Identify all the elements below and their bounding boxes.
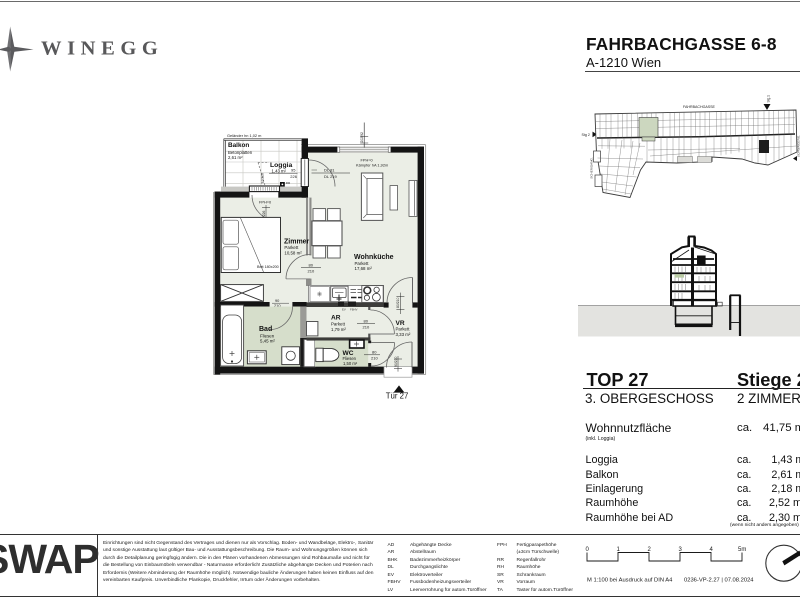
svg-text:Wohnküche: Wohnküche bbox=[354, 254, 394, 261]
svg-text:Stg.1: Stg.1 bbox=[767, 95, 771, 103]
svg-text:91/226: 91/226 bbox=[261, 173, 265, 183]
svg-text:FBHV: FBHV bbox=[350, 308, 358, 312]
svg-text:17,68 m²: 17,68 m² bbox=[355, 266, 373, 271]
svg-text:SCHERIDANG.: SCHERIDANG. bbox=[590, 157, 594, 179]
svg-text:95: 95 bbox=[291, 167, 296, 172]
svg-text:202/92: 202/92 bbox=[360, 132, 364, 142]
svg-text:FAHRBACHGASSE: FAHRBACHGASSE bbox=[683, 105, 716, 109]
svg-text:Kämpfer hA 1,92m: Kämpfer hA 1,92m bbox=[356, 163, 388, 168]
svg-text:5,45 m²: 5,45 m² bbox=[260, 339, 275, 344]
svg-text:210: 210 bbox=[371, 356, 378, 361]
svg-text:5m: 5m bbox=[738, 547, 746, 553]
svg-text:Bett 180x200: Bett 180x200 bbox=[257, 265, 279, 269]
svg-text:80: 80 bbox=[309, 262, 314, 267]
svg-text:1,50 m²: 1,50 m² bbox=[343, 361, 358, 366]
svg-text:0236-VP-2.27 | 07.08.2024: 0236-VP-2.27 | 07.08.2024 bbox=[684, 578, 754, 584]
svg-text:Parkett: Parkett bbox=[331, 321, 346, 326]
svg-text:Stg 2: Stg 2 bbox=[582, 133, 590, 137]
svg-text:Parkett: Parkett bbox=[284, 245, 299, 250]
svg-text:2: 2 bbox=[648, 547, 652, 553]
svg-text:0: 0 bbox=[586, 547, 590, 553]
svg-text:4: 4 bbox=[710, 547, 714, 553]
svg-text:SCHWAIGERG.: SCHWAIGERG. bbox=[797, 135, 800, 157]
svg-text:1,79 m²: 1,79 m² bbox=[331, 327, 346, 332]
svg-text:1,43 m²: 1,43 m² bbox=[272, 169, 287, 174]
svg-text:M 1:100 bei Ausdruck auf DIN A: M 1:100 bei Ausdruck auf DIN A4 bbox=[587, 578, 673, 584]
svg-text:210: 210 bbox=[308, 269, 315, 274]
svg-text:Bad: Bad bbox=[259, 326, 272, 333]
svg-text:EV: EV bbox=[342, 308, 346, 312]
svg-text:90/210: 90/210 bbox=[394, 357, 398, 367]
svg-text:1: 1 bbox=[617, 547, 621, 553]
svg-text:210: 210 bbox=[363, 324, 370, 329]
svg-text:3,33 m²: 3,33 m² bbox=[396, 332, 411, 337]
svg-text:Geländer hn 1,02 m: Geländer hn 1,02 m bbox=[227, 133, 261, 138]
svg-text:2,61 m²: 2,61 m² bbox=[228, 155, 243, 160]
svg-text:WINEGG: WINEGG bbox=[41, 38, 163, 60]
svg-text:10,58 m²: 10,58 m² bbox=[284, 251, 302, 256]
svg-text:3: 3 bbox=[679, 547, 683, 553]
svg-text:226: 226 bbox=[290, 174, 297, 179]
svg-text:80: 80 bbox=[372, 350, 377, 355]
svg-text:Tür 27: Tür 27 bbox=[386, 392, 409, 401]
svg-text:80/210: 80/210 bbox=[396, 298, 400, 308]
svg-text:Balkon: Balkon bbox=[228, 142, 249, 149]
svg-text:DL 219: DL 219 bbox=[324, 174, 338, 179]
svg-text:FPH=0: FPH=0 bbox=[259, 199, 272, 204]
svg-text:80: 80 bbox=[364, 318, 369, 323]
svg-text:Parkett: Parkett bbox=[396, 327, 411, 332]
svg-text:DL 81: DL 81 bbox=[324, 168, 335, 173]
